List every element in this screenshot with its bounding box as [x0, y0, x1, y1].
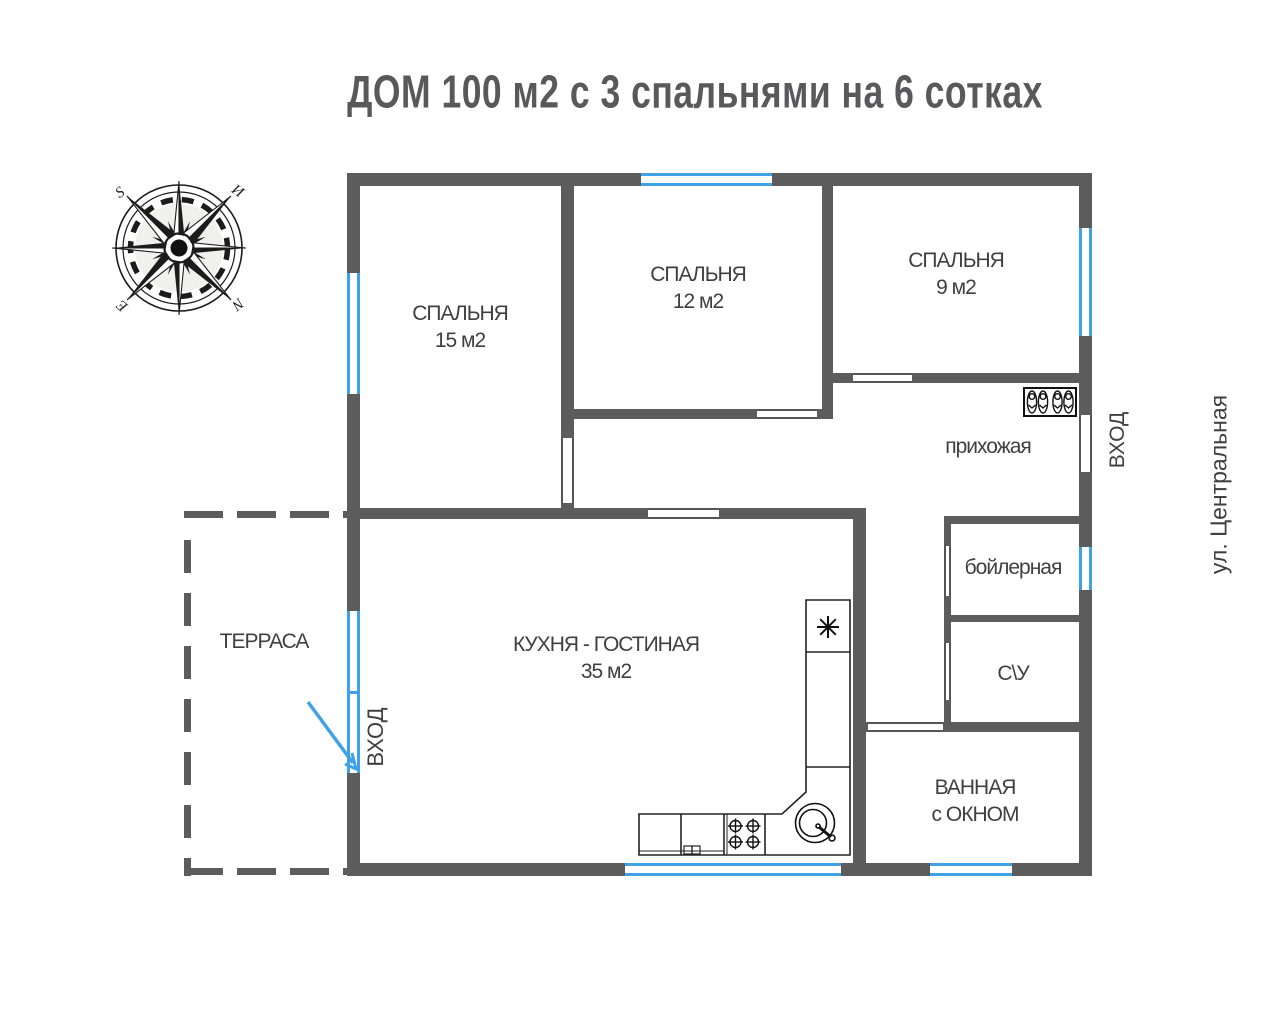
svg-text:И: И — [228, 181, 248, 202]
svg-text:S: S — [113, 184, 129, 202]
svg-text:E: E — [114, 296, 132, 315]
svg-text:N: N — [228, 294, 247, 314]
